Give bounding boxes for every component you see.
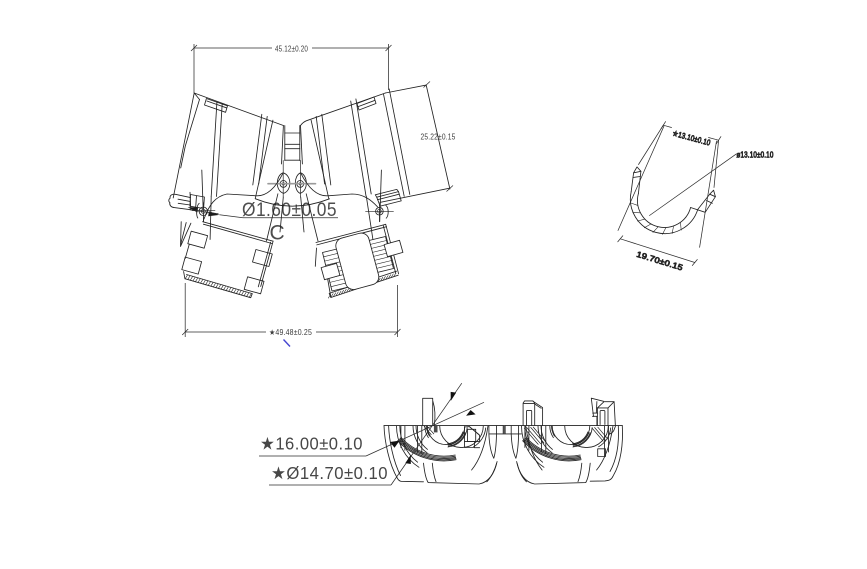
svg-text:ø13.10±0.10: ø13.10±0.10: [737, 151, 774, 160]
svg-text:★16.00±0.10: ★16.00±0.10: [260, 434, 363, 454]
svg-text:★49.48±0.25: ★49.48±0.25: [269, 328, 312, 337]
svg-text:★Ø14.70±0.10: ★Ø14.70±0.10: [271, 463, 388, 483]
svg-text:45.12±0.20: 45.12±0.20: [275, 45, 308, 54]
